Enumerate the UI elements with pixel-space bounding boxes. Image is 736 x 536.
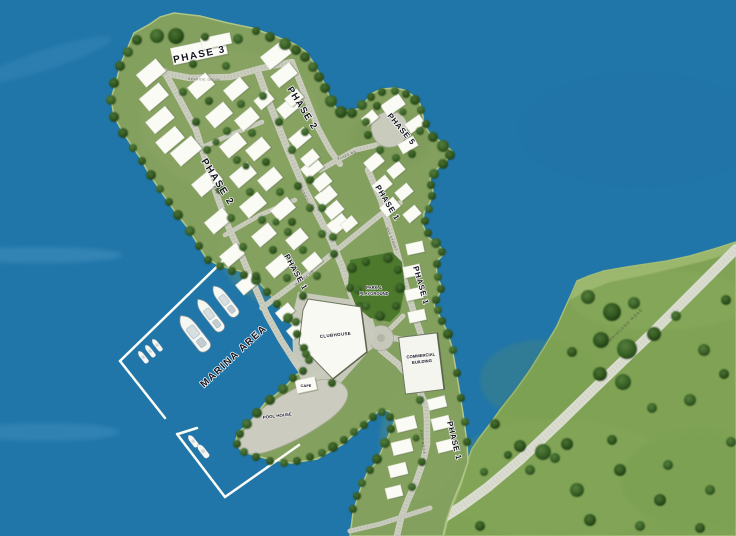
svg-text:CAFE: CAFE: [301, 383, 312, 388]
svg-text:PLAYGROUND: PLAYGROUND: [359, 291, 388, 296]
svg-text:PARK &: PARK &: [366, 285, 382, 290]
